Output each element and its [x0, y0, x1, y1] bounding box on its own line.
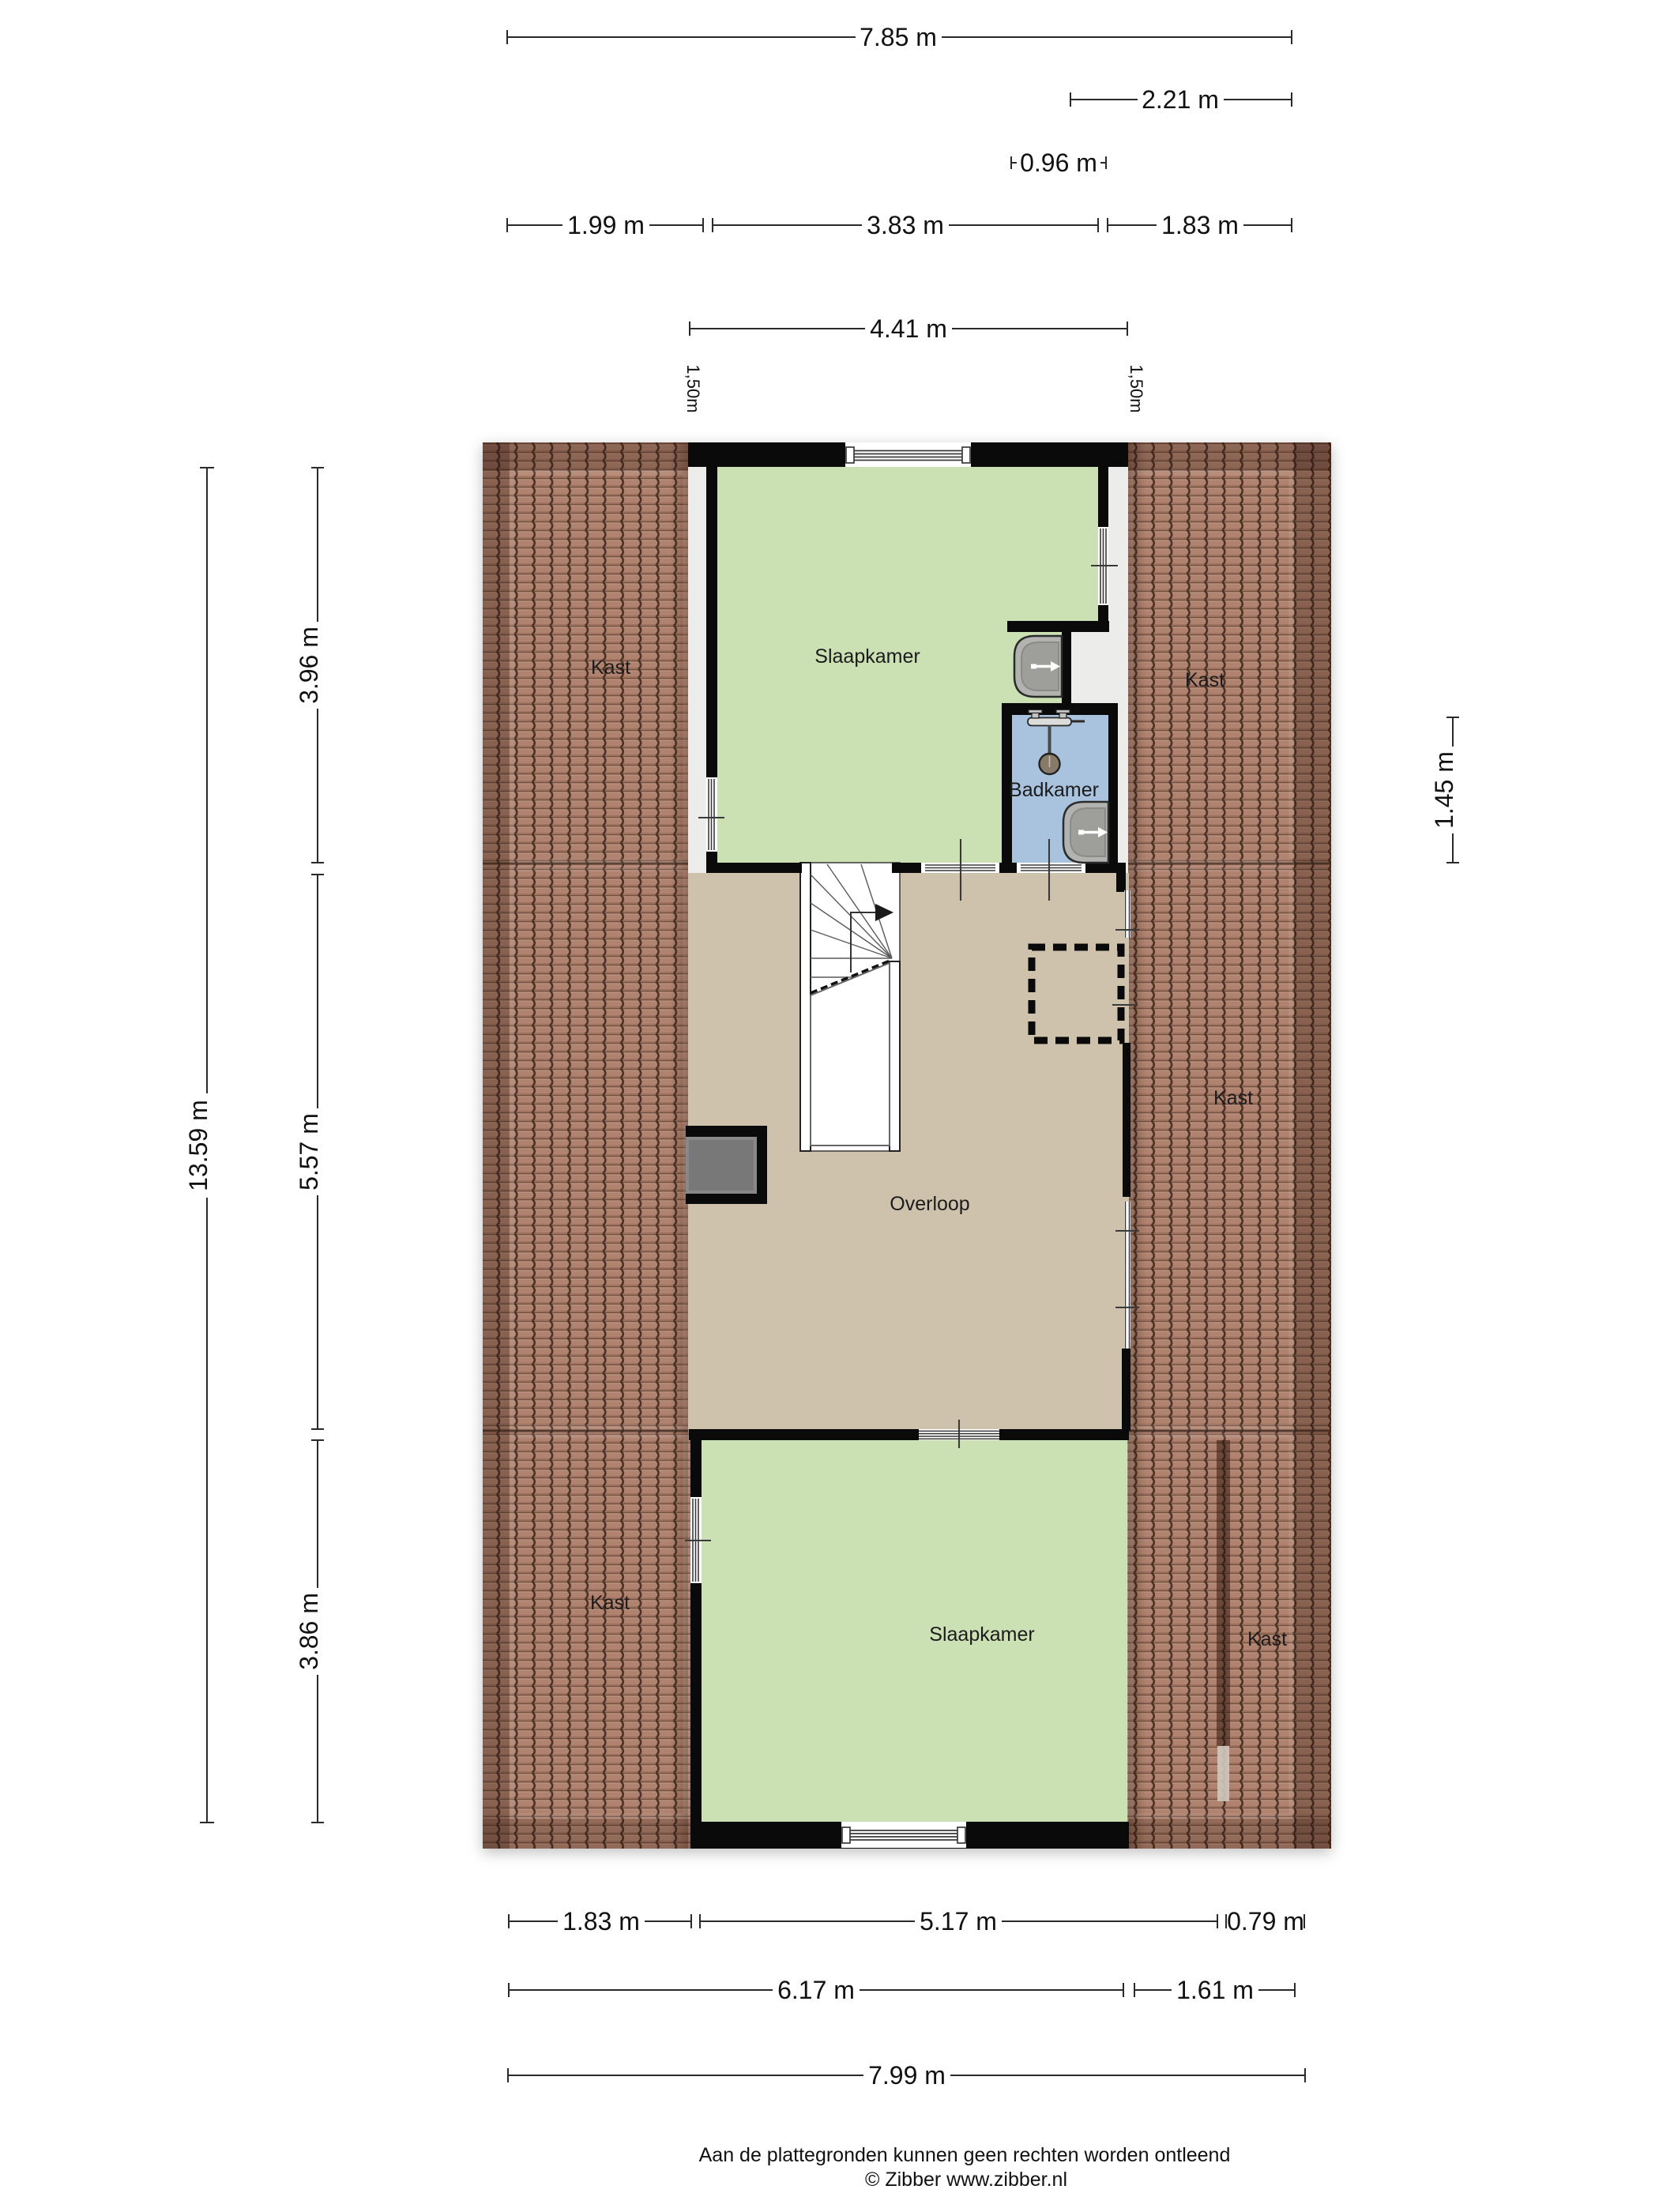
- svg-text:13.59 m: 13.59 m: [184, 1100, 213, 1191]
- svg-text:2.21 m: 2.21 m: [1142, 85, 1219, 114]
- svg-text:0.96 m: 0.96 m: [1020, 149, 1097, 177]
- svg-text:1.83 m: 1.83 m: [1161, 211, 1239, 239]
- svg-text:Overloop: Overloop: [890, 1193, 969, 1215]
- svg-text:Slaapkamer: Slaapkamer: [929, 1623, 1034, 1646]
- svg-text:7.99 m: 7.99 m: [868, 2061, 946, 2090]
- svg-text:1.61 m: 1.61 m: [1176, 1976, 1254, 2004]
- svg-text:1.83 m: 1.83 m: [562, 1907, 640, 1935]
- svg-text:5.17 m: 5.17 m: [920, 1907, 997, 1935]
- svg-text:3.96 m: 3.96 m: [295, 626, 323, 704]
- svg-text:Kast: Kast: [590, 1592, 630, 1614]
- svg-text:1,50m: 1,50m: [1127, 364, 1146, 412]
- svg-text:7.85 m: 7.85 m: [860, 23, 937, 51]
- svg-text:Kast: Kast: [1213, 1087, 1253, 1109]
- svg-text:Kast: Kast: [591, 656, 630, 679]
- svg-text:Badkamer: Badkamer: [1009, 779, 1099, 801]
- svg-text:© Zibber www.zibber.nl: © Zibber www.zibber.nl: [865, 2169, 1067, 2191]
- svg-text:5.57 m: 5.57 m: [295, 1113, 323, 1191]
- svg-text:0.79 m: 0.79 m: [1227, 1907, 1304, 1935]
- svg-text:Slaapkamer: Slaapkamer: [814, 645, 920, 668]
- svg-text:3.83 m: 3.83 m: [867, 211, 944, 239]
- svg-text:1.45 m: 1.45 m: [1430, 751, 1458, 829]
- svg-text:Aan de plattegronden kunnen ge: Aan de plattegronden kunnen geen rechten…: [699, 2144, 1231, 2166]
- svg-text:6.17 m: 6.17 m: [777, 1976, 855, 2004]
- svg-text:3.86 m: 3.86 m: [295, 1593, 323, 1670]
- svg-text:1.99 m: 1.99 m: [567, 211, 645, 239]
- svg-text:Kast: Kast: [1247, 1628, 1287, 1650]
- svg-text:4.41 m: 4.41 m: [870, 314, 947, 343]
- svg-text:Kast: Kast: [1185, 669, 1224, 691]
- svg-text:1,50m: 1,50m: [683, 364, 703, 412]
